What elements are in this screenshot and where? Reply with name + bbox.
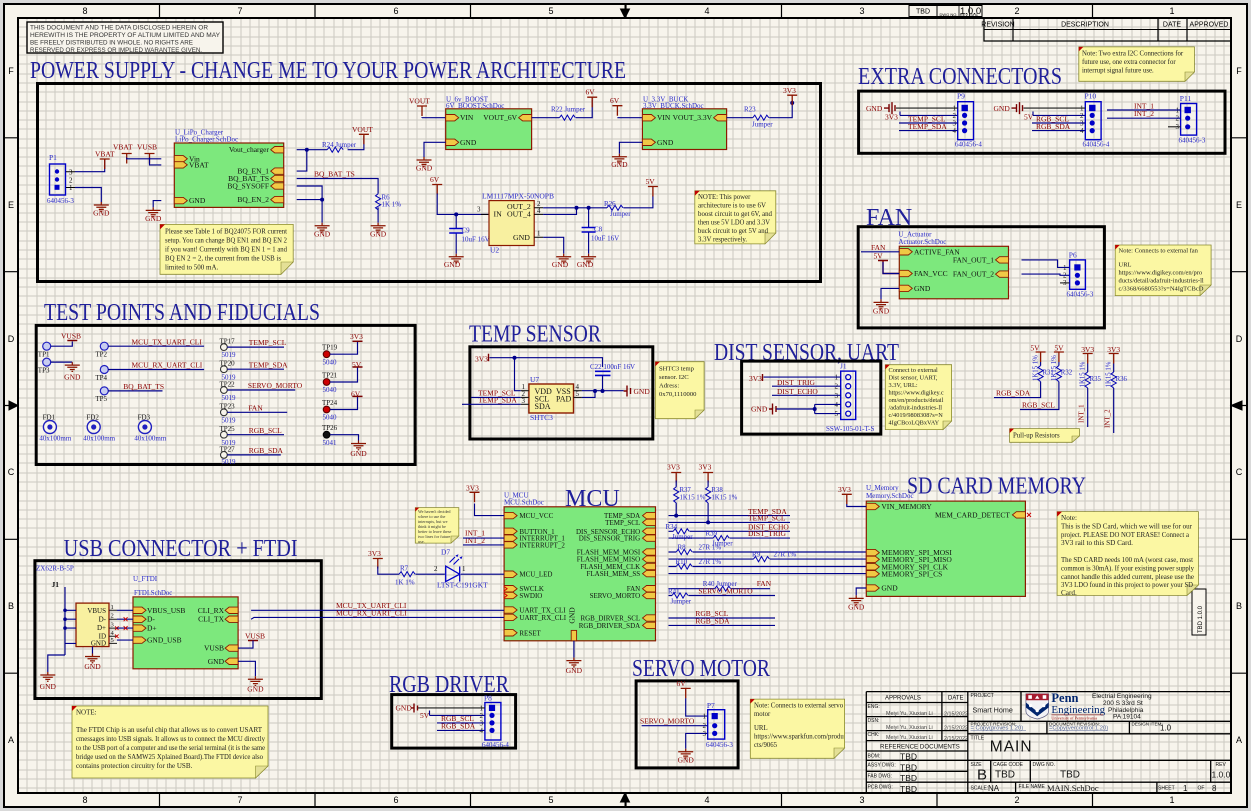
svg-text:3V3: 3V3 — [475, 355, 488, 364]
svg-text:5040: 5040 — [323, 358, 338, 366]
svg-text:BQ EN 2 = 2, the current from: BQ EN 2 = 2, the current from the USB is — [165, 255, 281, 263]
svg-text:GND: GND — [64, 373, 81, 382]
svg-text:Jumper: Jumper — [671, 597, 692, 605]
svg-text:RGB_SDA: RGB_SDA — [441, 722, 476, 731]
svg-text:use.: use. — [418, 539, 425, 544]
svg-text:USB CONNECTOR + FTDI: USB CONNECTOR + FTDI — [64, 536, 298, 562]
svg-text:GND: GND — [396, 704, 413, 713]
svg-text:2/15/2022: 2/15/2022 — [944, 712, 968, 718]
svg-text:GND: GND — [751, 405, 768, 414]
svg-text:4: 4 — [704, 6, 709, 16]
svg-text:GND: GND — [247, 685, 264, 694]
svg-text:3V3: 3V3 — [838, 485, 851, 494]
svg-text:VBUS: VBUS — [87, 607, 106, 615]
svg-text:TBD: TBD — [900, 762, 917, 772]
svg-text:if you want! Currently with BQ: if you want! Currently with BQ EN 1 = 1 … — [165, 246, 287, 254]
svg-text:REV: REV — [960, 12, 969, 17]
svg-text:REFERENCE DOCUMENTS: REFERENCE DOCUMENTS — [880, 744, 960, 751]
svg-text:RGB_SDA: RGB_SDA — [1036, 122, 1071, 131]
svg-text:MCU_LED: MCU_LED — [519, 571, 552, 579]
svg-text:P1: P1 — [49, 153, 57, 162]
svg-text:VOUT_3.3V: VOUT_3.3V — [673, 113, 713, 122]
svg-text:INT_2: INT_2 — [465, 536, 485, 545]
svg-text:D: D — [1236, 334, 1243, 344]
svg-text:GND: GND — [568, 607, 577, 624]
svg-text:ZX62R-B-5P: ZX62R-B-5P — [36, 565, 74, 573]
svg-text:40x100mm: 40x100mm — [134, 434, 166, 442]
svg-text:R34: R34 — [666, 523, 678, 531]
svg-text:C22 100nF 16V: C22 100nF 16V — [590, 363, 635, 371]
svg-text:https://www.digikey.com/en/pro: https://www.digikey.com/en/pro — [1119, 270, 1203, 277]
svg-text:C: C — [1236, 467, 1243, 477]
svg-text:4IgCBcoLQBxVAY: 4IgCBcoLQBxVAY — [889, 420, 940, 427]
svg-text:R24 Jumper: R24 Jumper — [322, 141, 357, 149]
svg-text:DIS_SENSOR_TRIG: DIS_SENSOR_TRIG — [579, 535, 640, 543]
svg-text:OF: OF — [1198, 786, 1205, 792]
svg-text:1: 1 — [111, 604, 114, 611]
svg-text:640456-4: 640456-4 — [482, 741, 509, 749]
svg-text:Card.: Card. — [1061, 589, 1077, 597]
svg-text:GND: GND — [552, 260, 569, 269]
svg-text:VOUT: VOUT — [352, 125, 373, 134]
svg-text:MEMORY_SPI_CS: MEMORY_SPI_CS — [881, 569, 942, 578]
svg-text:Please see Table 1 of BQ24075: Please see Table 1 of BQ24075 FOR curren… — [165, 228, 287, 236]
svg-text:3: 3 — [69, 169, 73, 177]
svg-text:BQ_BAT_TS: BQ_BAT_TS — [123, 382, 164, 391]
svg-text:2/15/2022: 2/15/2022 — [944, 736, 968, 742]
svg-text:GND: GND — [513, 233, 530, 242]
svg-text:SERVO_MORTO: SERVO_MORTO — [698, 586, 753, 595]
svg-text:SERVO_MORTO: SERVO_MORTO — [248, 381, 303, 390]
svg-text:PROJECT: PROJECT — [971, 693, 994, 699]
svg-text:3: 3 — [859, 6, 864, 16]
svg-text:C8: C8 — [594, 226, 603, 234]
svg-text:J1: J1 — [52, 580, 60, 589]
svg-text:Meiyi Yu, Xiuxian Li: Meiyi Yu, Xiuxian Li — [886, 725, 933, 731]
svg-text:GND: GND — [91, 639, 106, 647]
svg-text:future use, one extra connecto: future use, one extra connector for — [1082, 59, 1176, 66]
svg-text:NOTE: This power: NOTE: This power — [698, 194, 751, 201]
svg-text:5041: 5041 — [323, 439, 338, 447]
svg-text:5V: 5V — [1054, 344, 1064, 353]
svg-text:MCU_RX_UART_CLI: MCU_RX_UART_CLI — [336, 609, 407, 618]
svg-text:INT_1: INT_1 — [1078, 404, 1086, 423]
svg-text:27R 1%: 27R 1% — [774, 551, 797, 559]
svg-text:TP19: TP19 — [322, 344, 338, 352]
svg-text:motor: motor — [754, 711, 771, 718]
svg-text:Electrial Engineering: Electrial Engineering — [1092, 693, 1152, 700]
svg-text:bridge used on the SAMW25 Xpla: bridge used on the SAMW25 Xplained Board… — [76, 753, 263, 761]
svg-text:SWDIO: SWDIO — [519, 592, 542, 600]
svg-text:BQ_BAT_TS: BQ_BAT_TS — [314, 169, 355, 178]
svg-text:DATE: DATE — [1163, 22, 1181, 29]
svg-text:VIN_MEMORY: VIN_MEMORY — [881, 502, 932, 511]
svg-text:TEMP_SCL: TEMP_SCL — [605, 519, 640, 527]
svg-text:CAGE CODE: CAGE CODE — [993, 762, 1024, 768]
svg-text:5V: 5V — [1030, 344, 1040, 353]
svg-text:R7: R7 — [400, 565, 409, 573]
svg-text:FAB DWG:: FAB DWG: — [868, 774, 892, 780]
svg-text:U_FTDI: U_FTDI — [133, 575, 158, 583]
svg-text:GND: GND — [444, 260, 461, 269]
svg-text:PCB DWG:: PCB DWG: — [868, 785, 893, 791]
svg-text:om/en/products/detail: om/en/products/detail — [889, 397, 944, 404]
svg-text:VBAT: VBAT — [113, 143, 133, 152]
svg-text:GND: GND — [994, 104, 1011, 113]
svg-text:DIST_ECHO: DIST_ECHO — [777, 387, 818, 396]
svg-text:GND: GND — [208, 657, 225, 666]
svg-text:BQ_SYSOFF: BQ_SYSOFF — [227, 182, 269, 191]
svg-text:3V3: 3V3 — [368, 549, 381, 558]
svg-text:TBD: TBD — [916, 9, 930, 16]
svg-text:GND: GND — [416, 164, 433, 173]
svg-text:URL: URL — [754, 725, 768, 732]
svg-text:/adafruit-industries-ll: /adafruit-industries-ll — [889, 405, 943, 412]
svg-text:GND: GND — [84, 662, 101, 671]
svg-text:6: 6 — [393, 6, 398, 16]
svg-text:APPROVED: APPROVED — [1190, 22, 1229, 29]
svg-text:GND: GND — [40, 682, 57, 691]
svg-text:DIST_TRIG: DIST_TRIG — [777, 378, 815, 387]
svg-text:3.3V, URL:: 3.3V, URL: — [889, 382, 918, 389]
svg-text:F: F — [1236, 66, 1242, 76]
svg-text:P9: P9 — [957, 92, 965, 101]
svg-text:0x70,1110000: 0x70,1110000 — [659, 391, 697, 398]
svg-text:FLASH_MEM_SS: FLASH_MEM_SS — [587, 570, 641, 578]
svg-text:27R 1%: 27R 1% — [699, 544, 722, 552]
svg-text:SERVO_MORTO: SERVO_MORTO — [590, 592, 641, 600]
svg-text:4: 4 — [704, 795, 709, 805]
svg-text:2/15/2022: 2/15/2022 — [944, 726, 968, 732]
svg-text:J1: J1 — [840, 362, 847, 371]
svg-text:RESET: RESET — [519, 629, 541, 637]
svg-text:cmessages into USB signals. It: cmessages into USB signals. It allows us… — [76, 735, 265, 743]
svg-text:5040: 5040 — [323, 386, 338, 394]
svg-text:5019: 5019 — [222, 351, 237, 359]
svg-text:R36: R36 — [1116, 376, 1128, 383]
svg-text:VBAT: VBAT — [189, 160, 209, 169]
svg-text:D-: D- — [147, 615, 155, 624]
svg-text:3V3 LDO found in this project: 3V3 LDO found in this project to power y… — [1061, 581, 1193, 589]
svg-text:Meiyi Yu, Xiuxian Li: Meiyi Yu, Xiuxian Li — [886, 735, 933, 741]
svg-text:PA 19104: PA 19104 — [1113, 714, 1141, 721]
svg-text:3V3: 3V3 — [466, 484, 479, 493]
svg-text:https://www.digikey.c: https://www.digikey.c — [889, 390, 944, 397]
svg-text:1K15 1%: 1K15 1% — [1106, 361, 1113, 387]
svg-text:RESERVED OR EXPRESS OR IMPLIED: RESERVED OR EXPRESS OR IMPLIED WARANTEE … — [30, 47, 202, 54]
svg-text:D-: D- — [99, 615, 107, 623]
svg-text:REV: REV — [1216, 762, 1227, 768]
svg-text:200 S 33rd St: 200 S 33rd St — [1103, 700, 1143, 707]
svg-text:1K15 1%: 1K15 1% — [1051, 355, 1058, 381]
svg-text:3V3: 3V3 — [783, 86, 796, 95]
svg-text:TBD: TBD — [1060, 770, 1080, 781]
svg-text:R37: R37 — [680, 487, 692, 494]
svg-text:VOUT_6V: VOUT_6V — [483, 113, 517, 122]
svg-text:VUSB: VUSB — [61, 332, 81, 341]
svg-text:3V3: 3V3 — [1107, 345, 1120, 354]
svg-text:R23: R23 — [744, 106, 756, 114]
svg-text:D+: D+ — [97, 624, 106, 632]
svg-text:5V: 5V — [1024, 113, 1034, 122]
svg-text:4: 4 — [537, 207, 541, 215]
svg-text:VOUT: VOUT — [409, 97, 430, 106]
svg-text:LTST-C191GKT: LTST-C191GKT — [437, 581, 488, 590]
svg-text:MCU_TX_UART_CLI: MCU_TX_UART_CLI — [132, 337, 203, 346]
svg-text:8: 8 — [82, 6, 87, 16]
svg-text:Note: Two extra I2C Connection: Note: Two extra I2C Connections for — [1082, 51, 1184, 58]
svg-text:IN: IN — [494, 210, 503, 219]
svg-text:RGB_SCL: RGB_SCL — [249, 426, 282, 435]
svg-text:TITLE: TITLE — [971, 736, 985, 742]
svg-text:1K15 1%: 1K15 1% — [680, 494, 706, 501]
svg-text:GND: GND — [189, 196, 206, 205]
svg-text:CLI_TX: CLI_TX — [198, 615, 224, 624]
svg-text:REVISION: REVISION — [981, 22, 1014, 29]
svg-text:VIN: VIN — [460, 113, 474, 122]
svg-text:project. PLEASE DO NOT ERASE!: project. PLEASE DO NOT ERASE! Connect a — [1061, 531, 1190, 539]
svg-text:D+: D+ — [147, 624, 157, 633]
svg-text:GND: GND — [873, 307, 890, 316]
svg-text:UART_RX_CLI: UART_RX_CLI — [519, 614, 566, 622]
svg-text:RGB_SDA: RGB_SDA — [249, 446, 284, 455]
svg-text:6V: 6V — [610, 96, 620, 105]
svg-text:P10: P10 — [1085, 92, 1097, 101]
svg-text:The SD CARD needs 100 mA (wors: The SD CARD needs 100 mA (worst case, mo… — [1061, 556, 1193, 564]
svg-text:This is the SD Card, which we: This is the SD Card, which we will use f… — [1061, 522, 1193, 530]
svg-text:1: 1 — [1169, 795, 1174, 805]
svg-text:LM1117MPX-50NOPB: LM1117MPX-50NOPB — [482, 192, 554, 201]
svg-text:architecture is to use 6V: architecture is to use 6V — [698, 203, 766, 210]
svg-text:TP2: TP2 — [95, 351, 107, 359]
svg-text:TEMP_SCL: TEMP_SCL — [748, 514, 786, 523]
svg-text:BE FREELY DISTRIBUTED IN WHOLE: BE FREELY DISTRIBUTED IN WHOLE. NO RIGHT… — [30, 40, 194, 47]
svg-text:SHTC3: SHTC3 — [530, 413, 553, 422]
svg-text:OUT_4: OUT_4 — [507, 210, 531, 219]
svg-text:640456-4: 640456-4 — [955, 141, 982, 149]
svg-text:HEREWITH IS THE PROPERTY OF AL: HEREWITH IS THE PROPERTY OF ALTIUM LIMIT… — [30, 32, 221, 39]
svg-text:NOTE:: NOTE: — [76, 709, 97, 717]
svg-text:cts/9065: cts/9065 — [754, 742, 778, 749]
svg-text:GND: GND — [881, 584, 898, 593]
svg-text:limited to 500 mA.: limited to 500 mA. — [165, 264, 219, 272]
svg-text:DESIGN ITEM:: DESIGN ITEM: — [1132, 721, 1163, 726]
svg-text:GND: GND — [460, 138, 477, 147]
svg-text:1: 1 — [703, 713, 707, 721]
svg-text:U_Memory: U_Memory — [866, 484, 899, 492]
svg-text:DIST_TRIG: DIST_TRIG — [748, 529, 786, 538]
svg-text:1K15 1%: 1K15 1% — [711, 494, 737, 501]
svg-text:1: 1 — [1183, 784, 1188, 793]
svg-text:GND: GND — [678, 756, 695, 765]
svg-text:INTERRUPT_2: INTERRUPT_2 — [519, 541, 565, 549]
svg-text:B: B — [8, 601, 14, 611]
svg-text:GND: GND — [848, 602, 865, 611]
svg-text:GND_USB: GND_USB — [147, 636, 182, 645]
svg-text:Memory.SchDoc: Memory.SchDoc — [866, 492, 914, 500]
svg-text:7: 7 — [237, 6, 242, 16]
svg-text:TBD 1.0.0: TBD 1.0.0 — [1198, 605, 1204, 633]
svg-text:D: D — [8, 334, 15, 344]
svg-text:DSN:: DSN: — [868, 718, 880, 724]
svg-text:SCALE:: SCALE: — [971, 786, 989, 792]
svg-text:P8: P8 — [484, 694, 492, 703]
svg-text:setup. You can change BQ EN1 a: setup. You can change BQ EN1 and BQ EN 2 — [165, 237, 287, 245]
svg-text:common is 30mA). If your exist: common is 30mA). If your existing power … — [1061, 564, 1194, 572]
svg-text:3.3V respectively.: 3.3V respectively. — [698, 237, 747, 244]
svg-text:University of Pennsylvania: University of Pennsylvania — [1051, 715, 1097, 720]
svg-text:EXTRA CONNECTORS: EXTRA CONNECTORS — [858, 64, 1062, 90]
svg-text:Note: Connects to external fan: Note: Connects to external fan — [1119, 248, 1199, 255]
svg-text:PAD: PAD — [556, 395, 571, 404]
svg-text:TBD: TBD — [900, 752, 917, 762]
svg-text:6V: 6V — [586, 88, 596, 97]
svg-text:SD CARD MEMORY: SD CARD MEMORY — [907, 474, 1086, 500]
svg-text:CLI_RX: CLI_RX — [198, 606, 225, 615]
svg-text:3V3: 3V3 — [699, 463, 712, 472]
svg-text:F: F — [8, 66, 14, 76]
svg-text:1K15 1%: 1K15 1% — [1033, 355, 1040, 381]
svg-text:SDA: SDA — [535, 402, 551, 411]
svg-text:Jumper: Jumper — [752, 121, 773, 129]
svg-text:MAIN: MAIN — [990, 738, 1033, 755]
svg-text:8: 8 — [82, 795, 87, 805]
svg-text:Adress:: Adress: — [659, 383, 679, 390]
svg-text:VIN: VIN — [657, 113, 671, 122]
svg-text:ASSY DWG:: ASSY DWG: — [868, 763, 896, 769]
svg-text:boost circuit to get 6V, and: boost circuit to get 6V, and — [698, 211, 773, 218]
svg-text:VBUS_USB: VBUS_USB — [147, 606, 185, 615]
svg-text:GND: GND — [577, 260, 594, 269]
svg-text:10uF 16V: 10uF 16V — [591, 235, 619, 243]
svg-text:1.0: 1.0 — [1160, 724, 1172, 733]
svg-text:640456-4: 640456-4 — [1083, 141, 1110, 149]
svg-text:MCU_RX_UART_CLI: MCU_RX_UART_CLI — [132, 361, 203, 370]
svg-text:R39: R39 — [706, 530, 718, 538]
svg-text:BOM:: BOM: — [868, 754, 881, 760]
svg-text:CHK:: CHK: — [868, 732, 880, 738]
svg-text:5040: 5040 — [323, 414, 338, 422]
svg-text:sensor. I2C: sensor. I2C — [659, 374, 689, 381]
svg-text:Connect to external: Connect to external — [889, 367, 939, 374]
svg-text:The FTDI Chip is an useful chi: The FTDI Chip is an useful chip that all… — [76, 726, 263, 734]
svg-text:LiPo_Charger.SchDoc: LiPo_Charger.SchDoc — [175, 136, 238, 144]
svg-text:Smart Home: Smart Home — [973, 706, 1013, 715]
svg-text:TP1: TP1 — [38, 351, 50, 359]
svg-text:3: 3 — [522, 397, 526, 405]
svg-text:SSW-105-01-T-S: SSW-105-01-T-S — [826, 425, 874, 433]
svg-text:FAN_OUT_1: FAN_OUT_1 — [953, 256, 994, 265]
svg-text:3V3: 3V3 — [350, 332, 363, 341]
svg-text:FTDI.SchDoc: FTDI.SchDoc — [134, 590, 172, 597]
svg-text:MCU_VCC: MCU_VCC — [519, 512, 553, 520]
svg-text:R38: R38 — [711, 487, 723, 494]
svg-text:Jumper: Jumper — [672, 533, 693, 541]
svg-text:2: 2 — [434, 565, 438, 573]
svg-text:RGB_DRIVER_SDA: RGB_DRIVER_SDA — [579, 622, 640, 630]
svg-text:P6: P6 — [1069, 250, 1077, 259]
svg-text:TEMP_SDA: TEMP_SDA — [908, 122, 947, 131]
svg-text:GND: GND — [657, 138, 674, 147]
svg-text:6V: 6V — [430, 175, 440, 184]
svg-text:1: 1 — [537, 230, 541, 238]
svg-text:5019: 5019 — [222, 458, 237, 466]
svg-text:2: 2 — [1014, 795, 1019, 805]
svg-text:E: E — [8, 200, 14, 210]
svg-text:E: E — [1236, 200, 1242, 210]
svg-text:GND: GND — [350, 449, 367, 458]
svg-text:TP26: TP26 — [322, 424, 338, 432]
svg-text:FILE NAME: FILE NAME — [1019, 784, 1046, 790]
svg-text:A: A — [1236, 735, 1242, 745]
svg-text:2: 2 — [1014, 6, 1019, 16]
svg-text:R41: R41 — [668, 587, 680, 595]
svg-text:R35: R35 — [1090, 376, 1102, 383]
svg-text:SHEET: SHEET — [1158, 786, 1175, 792]
svg-text:3V3 rail to this SD Card.: 3V3 rail to this SD Card. — [1061, 539, 1133, 547]
svg-text:1K 1%: 1K 1% — [382, 201, 402, 209]
svg-text:640456-3: 640456-3 — [1179, 137, 1206, 145]
svg-text:1K15 1%: 1K15 1% — [1080, 361, 1087, 387]
svg-text:TEST POINTS AND FIDUCIALS: TEST POINTS AND FIDUCIALS — [44, 300, 320, 326]
svg-text:2: 2 — [111, 613, 114, 620]
svg-text:GND: GND — [314, 229, 331, 238]
svg-text:DESCRIPTION: DESCRIPTION — [1061, 22, 1109, 29]
svg-text:C: C — [8, 467, 15, 477]
svg-text:7: 7 — [237, 795, 242, 805]
svg-text:ducts/detail/adafruit-industri: ducts/detail/adafruit-industries-ll — [1119, 278, 1204, 285]
svg-text:1: 1 — [1169, 6, 1174, 16]
svg-text:interrupt signal future use.: interrupt signal future use. — [1082, 68, 1154, 75]
svg-text:Dist sensor, UART,: Dist sensor, UART, — [889, 375, 938, 382]
svg-text:Note: Connects to external ser: Note: Connects to external servo — [754, 703, 844, 710]
svg-text:TP5: TP5 — [95, 395, 107, 403]
svg-text:c/3368/6680553?s=N4IgTCBcD: c/3368/6680553?s=N4IgTCBcD — [1119, 286, 1204, 293]
svg-text:ENG:: ENG: — [868, 704, 880, 710]
svg-text:Note:: Note: — [1061, 514, 1077, 522]
svg-text:U2: U2 — [490, 246, 499, 255]
svg-text:SHTC3 temp: SHTC3 temp — [659, 366, 695, 373]
svg-text:P11: P11 — [1180, 94, 1192, 103]
svg-text:3: 3 — [859, 795, 864, 805]
svg-text:VUSB: VUSB — [137, 143, 157, 152]
svg-text:5V: 5V — [874, 252, 884, 261]
svg-text:40x100mm: 40x100mm — [39, 434, 71, 442]
svg-text:TP4: TP4 — [95, 374, 107, 382]
svg-text:SERVO MOTOR: SERVO MOTOR — [632, 656, 770, 682]
svg-text:R8: R8 — [678, 544, 687, 552]
svg-text:GND: GND — [634, 387, 651, 396]
svg-text:TBD: TBD — [900, 773, 917, 783]
svg-text:3V3: 3V3 — [1081, 345, 1094, 354]
svg-text:B: B — [1236, 601, 1242, 611]
svg-text:640456-3: 640456-3 — [1067, 291, 1094, 299]
svg-text:TP21: TP21 — [322, 371, 338, 379]
svg-text:SH1: SH1 — [970, 12, 979, 17]
svg-text:640456-3: 640456-3 — [47, 197, 74, 205]
svg-text:RGB_SCL: RGB_SCL — [1022, 400, 1055, 409]
svg-text:SERVO_MORTO: SERVO_MORTO — [640, 717, 695, 726]
svg-text:DWG NO.: DWG NO. — [1033, 762, 1056, 768]
svg-text:TP24: TP24 — [322, 399, 338, 407]
svg-text:1K 1%: 1K 1% — [395, 579, 415, 587]
svg-text:5: 5 — [548, 6, 553, 16]
svg-text:TBD: TBD — [900, 784, 917, 794]
svg-text:BQ_EN_2: BQ_EN_2 — [237, 195, 269, 204]
svg-text:5V: 5V — [420, 711, 430, 720]
svg-text:5V: 5V — [646, 177, 656, 186]
svg-text:A: A — [8, 735, 14, 745]
